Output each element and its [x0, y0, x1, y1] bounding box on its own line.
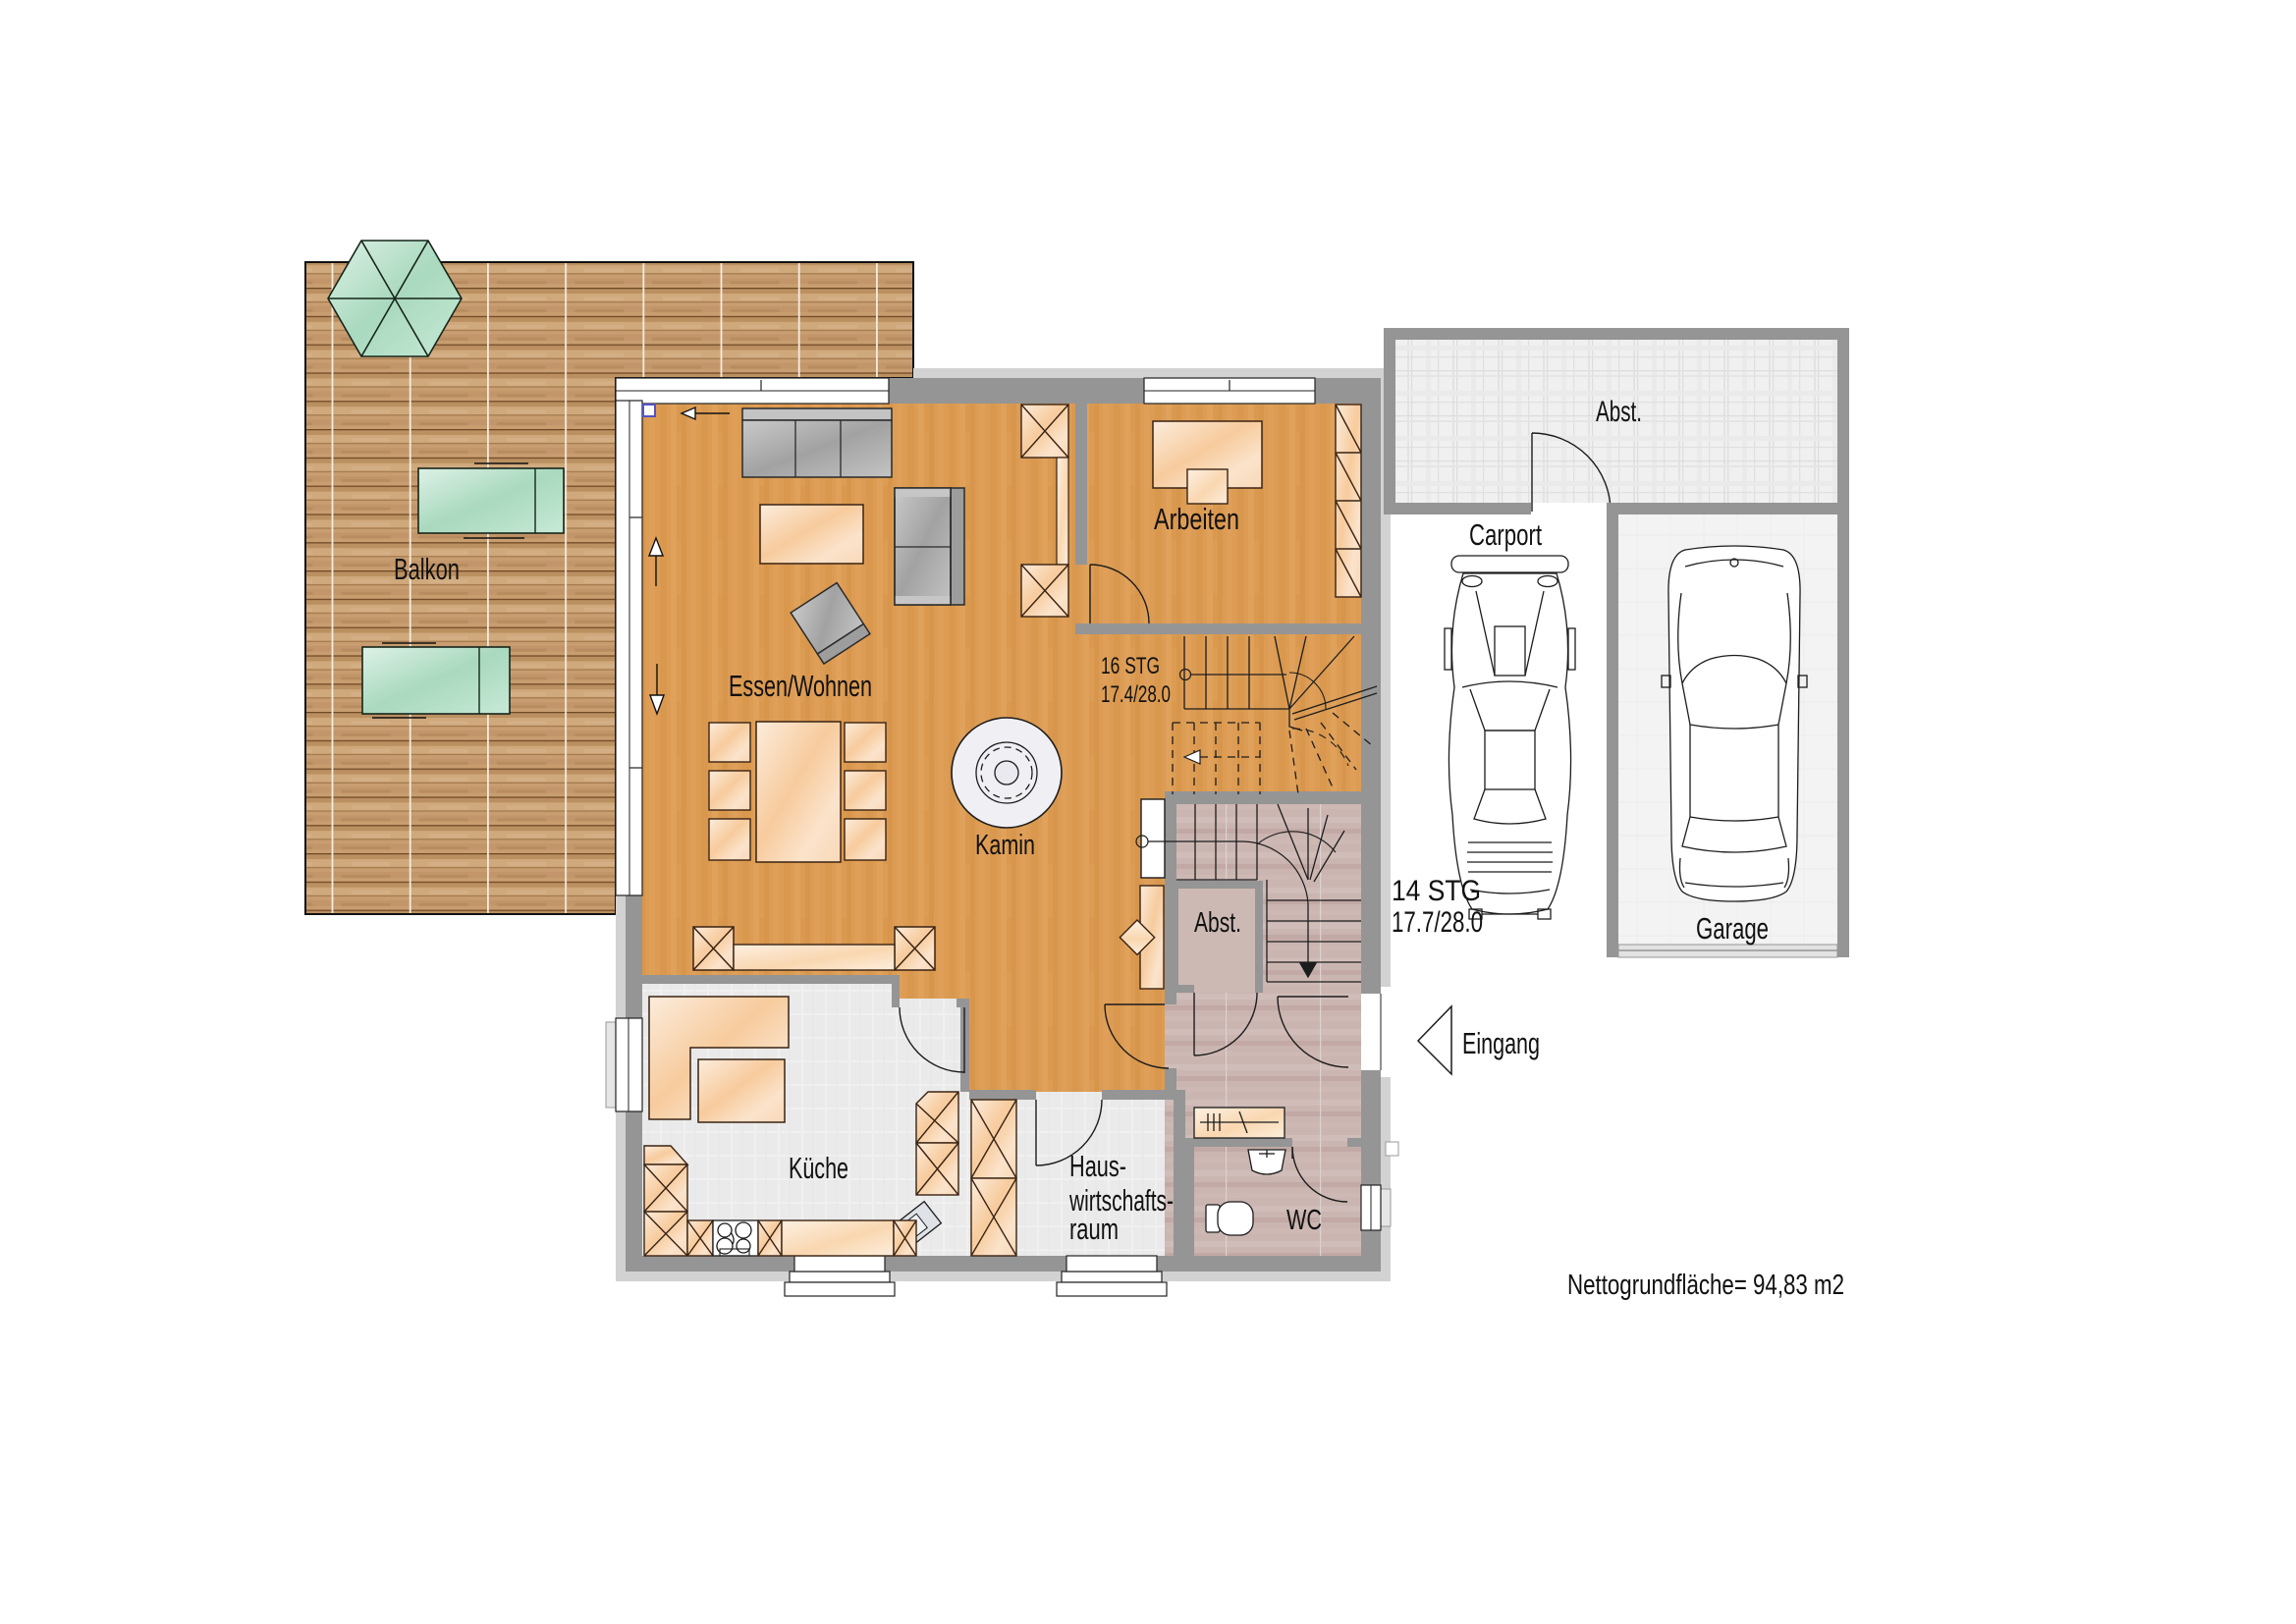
svg-text:Arbeiten: Arbeiten	[1154, 502, 1239, 536]
svg-text:raum: raum	[1069, 1212, 1119, 1246]
svg-text:Eingang: Eingang	[1462, 1026, 1540, 1060]
svg-text:Garage: Garage	[1696, 911, 1769, 946]
svg-text:Abst.: Abst.	[1194, 907, 1241, 939]
svg-text:WC: WC	[1286, 1205, 1322, 1236]
svg-text:Essen/Wohnen: Essen/Wohnen	[729, 669, 872, 703]
svg-text:Kamin: Kamin	[975, 830, 1035, 861]
svg-text:Balkon: Balkon	[394, 552, 460, 586]
svg-text:Haus-: Haus-	[1069, 1149, 1126, 1183]
svg-text:16 STG: 16 STG	[1101, 653, 1160, 679]
svg-text:Carport: Carport	[1469, 517, 1542, 552]
svg-text:17.4/28.0: 17.4/28.0	[1101, 681, 1171, 708]
svg-text:Nettogrundfläche= 94,83 m2: Nettogrundfläche= 94,83 m2	[1567, 1270, 1844, 1301]
svg-text:14 STG: 14 STG	[1392, 875, 1481, 907]
svg-text:Abst.: Abst.	[1596, 396, 1642, 428]
svg-text:Küche: Küche	[789, 1151, 848, 1185]
svg-text:17.7/28.0: 17.7/28.0	[1392, 906, 1483, 939]
